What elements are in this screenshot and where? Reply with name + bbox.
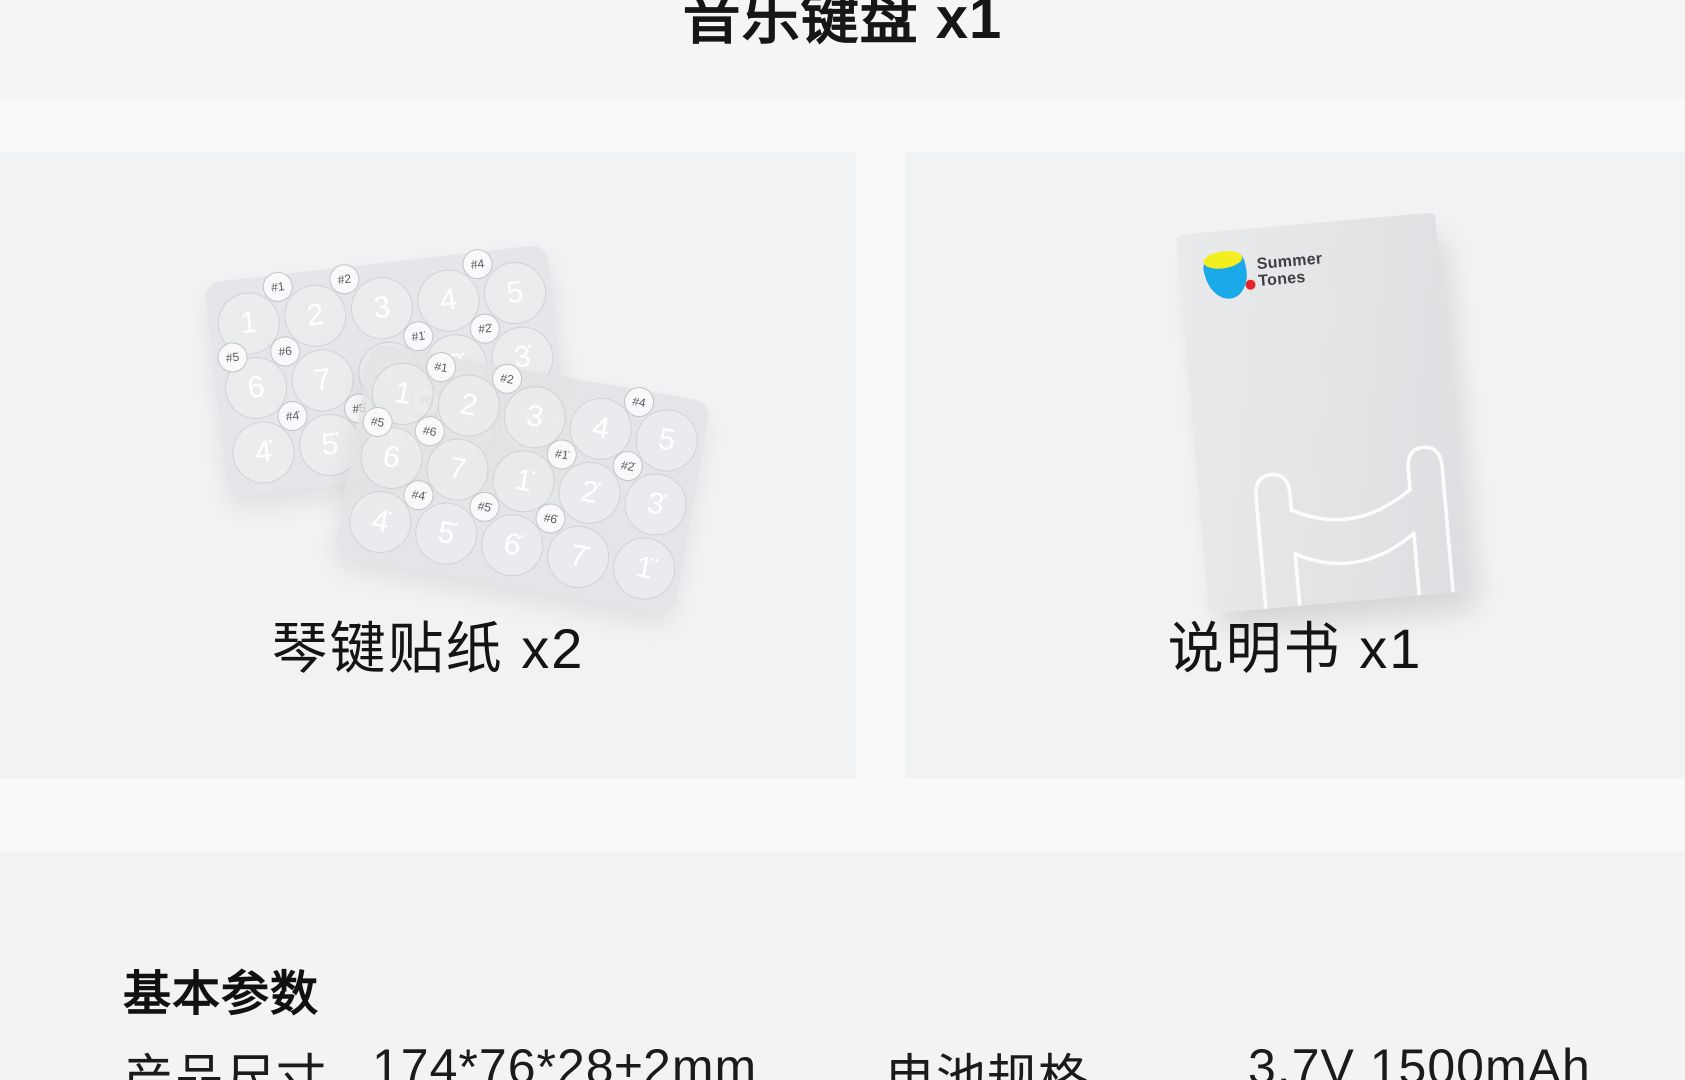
page-title: 音乐键盘 x1 xyxy=(0,0,1685,55)
specs-heading: 基本参数 xyxy=(123,954,319,1024)
spec-label-battery: 电池规格 xyxy=(885,1038,1089,1080)
spec-value-dimensions: 174*76*28±2mm xyxy=(372,1038,757,1080)
title-band: 音乐键盘 x1 xyxy=(0,0,1685,100)
caption-manual: 说明书 x1 xyxy=(905,604,1685,685)
sticker-key: 1̈ xyxy=(608,533,680,605)
keyboard-outline-drawing xyxy=(1251,440,1464,612)
manual-image: Summer Tones xyxy=(1176,212,1468,613)
logo-wordmark: Summer Tones xyxy=(1255,242,1324,290)
caption-key-stickers: 琴键贴纸 x2 xyxy=(0,604,856,685)
summer-tones-logo: Summer Tones xyxy=(1204,242,1326,302)
spec-label-dimensions: 产品尺寸 xyxy=(123,1038,327,1080)
spec-value-battery: 3.7V 1500mAh xyxy=(1248,1038,1591,1080)
card-key-stickers: 12345671̇2̇3̇4̇5̇6̇7̇1̈#1#2#4#5#6#1̇#2̇#… xyxy=(0,152,856,778)
card-manual: Summer Tones 说明书 x1 xyxy=(905,152,1685,778)
summer-tones-logo-icon xyxy=(1200,246,1255,306)
sticker-sheet-front: 12345671̇2̇3̇4̇5̇6̇7̇1̈#1#2#4#5#6#1̇#2̇#… xyxy=(334,343,711,615)
package-contents-row: 12345671̇2̇3̇4̇5̇6̇7̇1̈#1#2#4#5#6#1̇#2̇#… xyxy=(0,152,1685,778)
logo-word-tones: Tones xyxy=(1258,269,1307,290)
product-detail-page: 音乐键盘 x1 12345671̇2̇3̇4̇5̇6̇7̇1̈#1#2#4#5#… xyxy=(0,0,1685,1080)
specs-section: 基本参数 产品尺寸 174*76*28±2mm 电池规格 3.7V 1500mA… xyxy=(0,852,1685,1080)
